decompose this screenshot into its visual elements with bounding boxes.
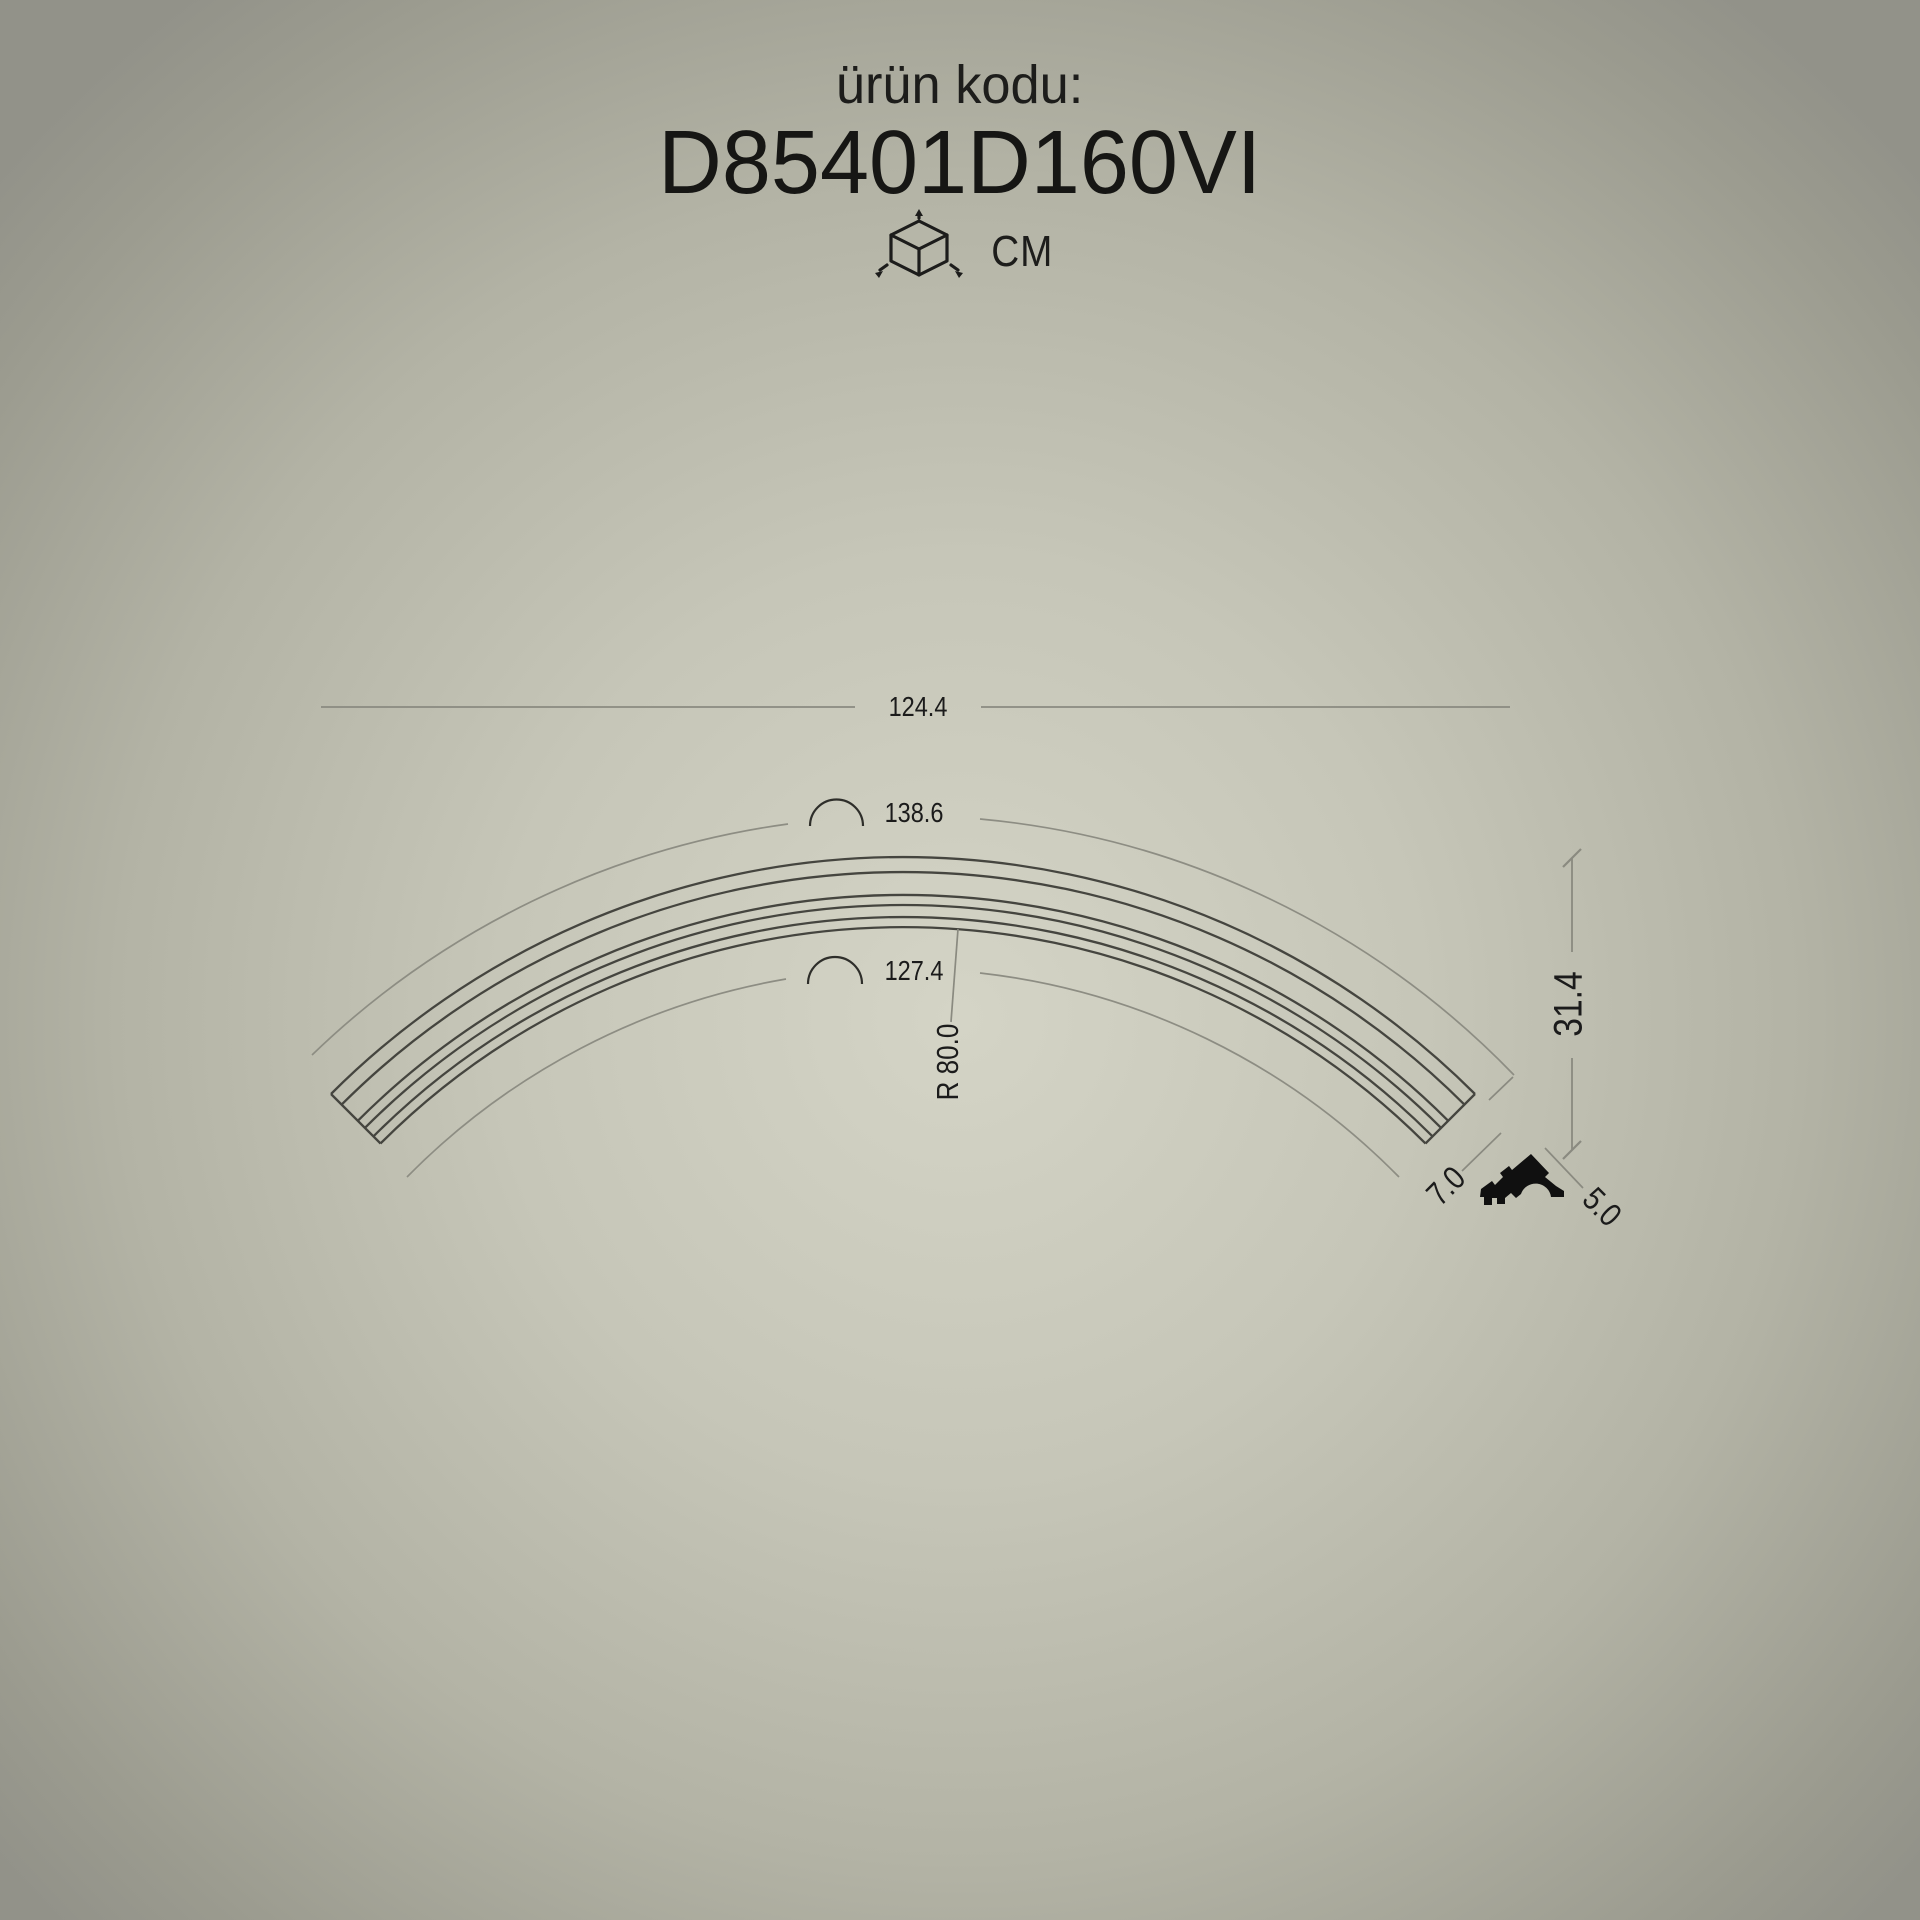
cut-extension-line: [1489, 1077, 1513, 1100]
dim-label-chord-width: 124.4: [889, 691, 948, 723]
arc-length-symbol-icon: [808, 800, 863, 985]
dim-label-outer-arc: 138.6: [885, 797, 944, 829]
radius-leader-line: [951, 929, 958, 1022]
end-width-dimension-line: [1462, 1133, 1501, 1171]
technical-drawing: [0, 0, 1920, 1920]
moulding-section-profile: [1480, 1154, 1564, 1205]
dim-label-inner-arc: 127.4: [885, 955, 944, 987]
dim-label-height: 31.4: [1547, 971, 1592, 1036]
moulding-arc-band: [331, 857, 1475, 1143]
dim-label-radius: R 80.0: [930, 1024, 966, 1101]
